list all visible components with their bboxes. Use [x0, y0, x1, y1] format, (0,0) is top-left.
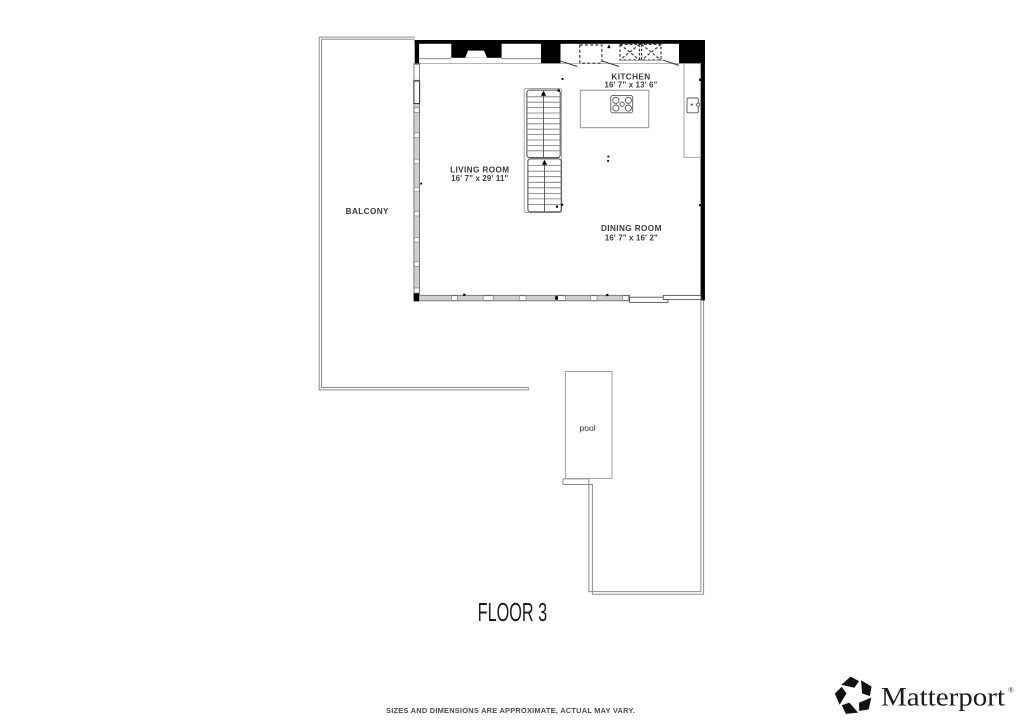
svg-text:16' 7" x 13' 6": 16' 7" x 13' 6"	[604, 81, 657, 90]
svg-text:pool: pool	[580, 423, 596, 433]
svg-text:Matterport: Matterport	[881, 681, 1006, 711]
svg-text:DINING ROOM: DINING ROOM	[601, 224, 662, 233]
svg-text:BALCONY: BALCONY	[346, 207, 389, 216]
svg-text:16' 7" x 16' 2": 16' 7" x 16' 2"	[605, 233, 658, 242]
svg-text:®: ®	[1008, 685, 1014, 694]
svg-text:SIZES AND DIMENSIONS ARE APPRO: SIZES AND DIMENSIONS ARE APPROXIMATE, AC…	[386, 706, 635, 715]
svg-text:FLOOR 3: FLOOR 3	[478, 599, 548, 627]
svg-text:16' 7" x 29' 11": 16' 7" x 29' 11"	[451, 174, 508, 183]
